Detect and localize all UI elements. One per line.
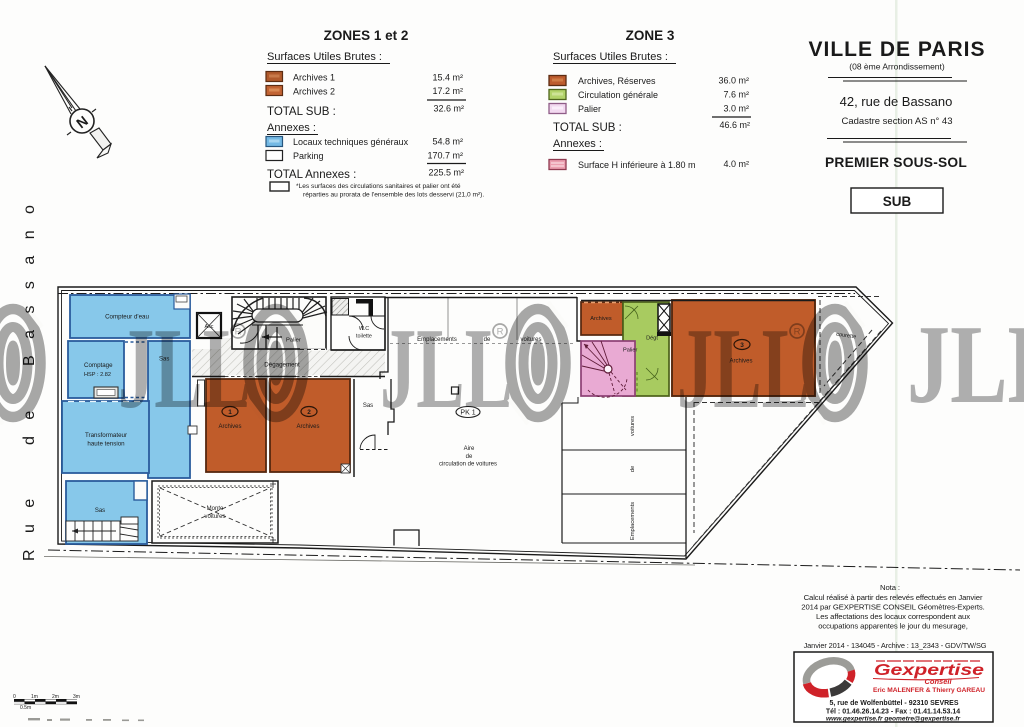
svg-text:3.0 m²: 3.0 m² xyxy=(723,104,749,114)
svg-text:3m: 3m xyxy=(73,694,80,700)
svg-text:Surface H inférieure à 1.80 m: Surface H inférieure à 1.80 m xyxy=(578,160,696,170)
svg-text:voitures: voitures xyxy=(630,416,636,436)
svg-text:haute tension: haute tension xyxy=(87,441,125,448)
svg-text:7.6 m²: 7.6 m² xyxy=(723,90,749,100)
svg-text:0.5m: 0.5m xyxy=(20,705,31,711)
svg-text:TOTAL SUB :: TOTAL SUB : xyxy=(553,122,622,134)
svg-text:Eric MALENFER & Thierry GAREAU: Eric MALENFER & Thierry GAREAU xyxy=(873,687,985,694)
svg-text:Archives 1: Archives 1 xyxy=(293,73,335,83)
svg-text:PREMIER SOUS-SOL: PREMIER SOUS-SOL xyxy=(825,155,967,170)
svg-text:Monte: Monte xyxy=(207,506,224,512)
svg-text:1m: 1m xyxy=(31,694,38,700)
svg-text:Emplacements: Emplacements xyxy=(630,502,636,540)
svg-text:de: de xyxy=(466,454,473,460)
svg-text:Calcul réalisé à partir des re: Calcul réalisé à partir des relevés effe… xyxy=(804,593,983,602)
svg-text:36.0 m²: 36.0 m² xyxy=(718,76,749,86)
svg-text:ZONE 3: ZONE 3 xyxy=(626,28,675,43)
svg-text:Janvier 2014 - 134045 - Archiv: Janvier 2014 - 134045 - Archive : 13_234… xyxy=(804,641,987,650)
svg-text:Palier: Palier xyxy=(623,348,637,354)
svg-text:SUB: SUB xyxy=(883,194,912,209)
svg-text:Surfaces Utiles Brutes :: Surfaces Utiles Brutes : xyxy=(267,51,382,63)
svg-text:de: de xyxy=(630,466,636,472)
svg-text:Annexes :: Annexes : xyxy=(553,138,602,150)
svg-text:Comptage: Comptage xyxy=(84,362,113,369)
svg-text:Dégt: Dégt xyxy=(646,336,658,342)
svg-text:2m: 2m xyxy=(52,694,59,700)
svg-text:Archives, Réserves: Archives, Réserves xyxy=(578,76,656,86)
svg-text:Circulation générale: Circulation générale xyxy=(578,90,658,100)
svg-text:Locaux techniques généraux: Locaux techniques généraux xyxy=(293,137,409,147)
svg-text:Archives: Archives xyxy=(296,424,319,430)
svg-text:225.5 m²: 225.5 m² xyxy=(428,168,464,178)
svg-text:TOTAL SUB :: TOTAL SUB : xyxy=(267,106,336,118)
svg-text:Archives: Archives xyxy=(590,316,612,322)
svg-text:Archives 2: Archives 2 xyxy=(293,87,335,97)
svg-text:Les affectations des locaux c: Les affectations des locaux corresponden… xyxy=(816,612,970,621)
svg-text:circulation de voitures: circulation de voitures xyxy=(439,462,497,468)
svg-text:TOTAL Annexes :: TOTAL Annexes : xyxy=(267,169,356,181)
svg-text:42, rue de Bassano: 42, rue de Bassano xyxy=(840,94,953,109)
svg-text:32.6 m²: 32.6 m² xyxy=(433,104,464,114)
svg-text:Nota :: Nota : xyxy=(880,583,900,592)
svg-text:0: 0 xyxy=(13,694,16,700)
svg-text:www.gexpertise.fr geometre@ge: www.gexpertise.fr geometre@gexpertise.fr xyxy=(826,716,961,723)
svg-text:5, rue de Wolfenbüttel - 92310: 5, rue de Wolfenbüttel - 92310 SEVRES xyxy=(829,700,958,707)
svg-text:46.6 m²: 46.6 m² xyxy=(719,120,750,130)
svg-text:15.4 m²: 15.4 m² xyxy=(432,73,463,83)
svg-text:Annexes :: Annexes : xyxy=(267,122,316,134)
svg-text:ZONES 1 et 2: ZONES 1 et 2 xyxy=(324,28,409,43)
svg-text:(08 ème Arrondissement): (08 ème Arrondissement) xyxy=(849,62,945,72)
svg-text:Tél : 01.46.26.14.23 - Fax : 0: Tél : 01.46.26.14.23 - Fax : 01.41.14.53… xyxy=(826,709,960,716)
svg-text:4.0 m²: 4.0 m² xyxy=(723,159,749,169)
svg-text:VILLE DE PARIS: VILLE DE PARIS xyxy=(809,38,986,61)
svg-text:occupations apparentes le jour: occupations apparentes le jour du mesura… xyxy=(818,622,968,631)
svg-text:54.8 m²: 54.8 m² xyxy=(432,137,463,147)
svg-text:W.C: W.C xyxy=(359,326,369,332)
svg-text:toilette: toilette xyxy=(356,334,372,340)
svg-text:*Les surfaces des circulations: *Les surfaces des circulations sanitaire… xyxy=(296,183,461,190)
svg-text:2: 2 xyxy=(307,409,311,416)
svg-text:170.7 m²: 170.7 m² xyxy=(427,151,463,161)
svg-text:JLL: JLL xyxy=(907,303,1024,427)
svg-text:réparties au prorata de l'ense: réparties au prorata de l'ensemble des l… xyxy=(303,192,484,199)
svg-text:Sas: Sas xyxy=(363,403,373,409)
svg-text:Conseil: Conseil xyxy=(924,677,952,686)
svg-text:2014 par GEXPERTISE CONSEIL Gé: 2014 par GEXPERTISE CONSEIL Géomètres-Ex… xyxy=(801,603,984,612)
svg-text:Parking: Parking xyxy=(293,151,324,161)
svg-text:HSP : 2.82: HSP : 2.82 xyxy=(84,372,111,378)
svg-text:Cadastre section AS n° 43: Cadastre section AS n° 43 xyxy=(841,116,952,127)
svg-text:Aire: Aire xyxy=(464,446,475,452)
svg-text:17.2 m²: 17.2 m² xyxy=(432,86,463,96)
svg-text:Palier: Palier xyxy=(578,104,601,114)
svg-text:R u e: R u e xyxy=(21,493,38,561)
svg-text:voitures: voitures xyxy=(204,514,225,520)
svg-text:Sas: Sas xyxy=(95,508,105,514)
svg-text:Surfaces Utiles Brutes :: Surfaces Utiles Brutes : xyxy=(553,51,668,63)
svg-text:Transformateur: Transformateur xyxy=(85,432,127,439)
